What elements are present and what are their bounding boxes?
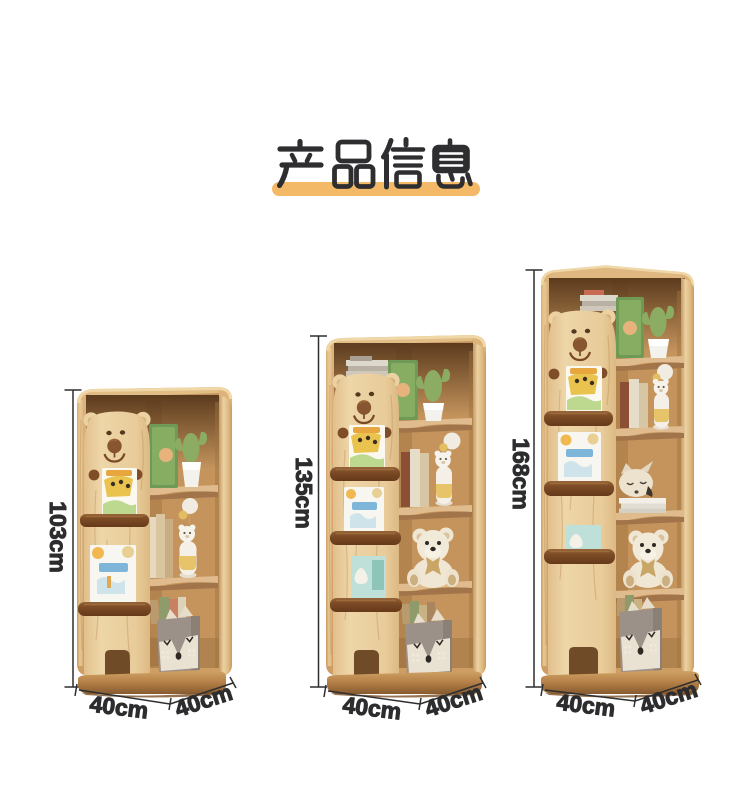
svg-text:103cm: 103cm — [45, 501, 71, 573]
svg-text:135cm: 135cm — [291, 457, 317, 529]
svg-text:168cm: 168cm — [508, 438, 534, 510]
svg-text:40cm: 40cm — [88, 691, 150, 724]
